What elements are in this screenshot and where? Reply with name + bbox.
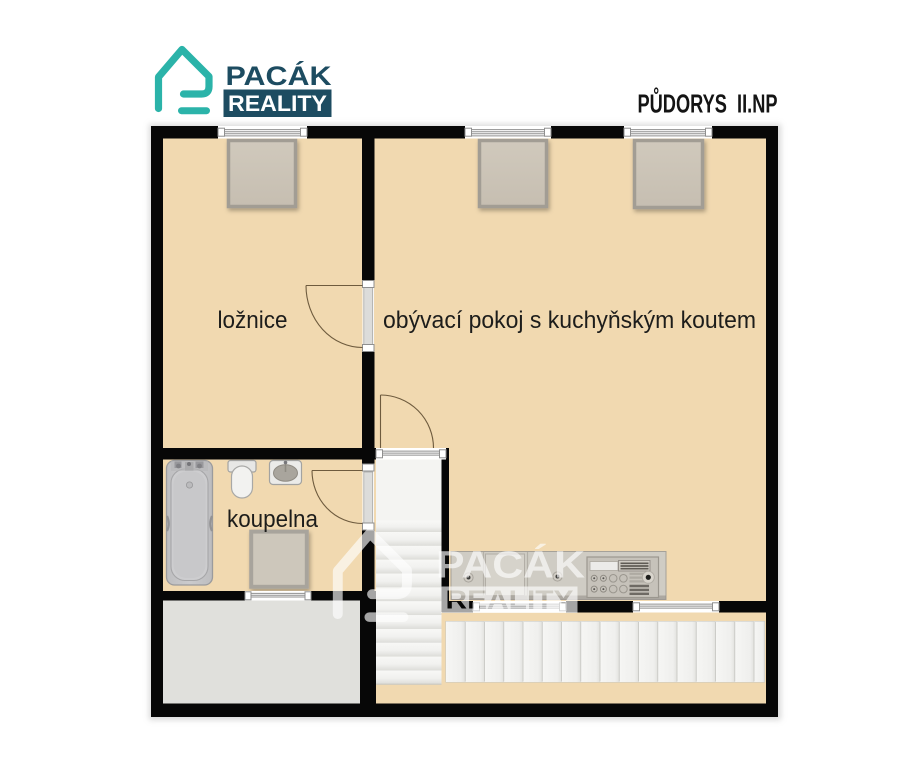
svg-text:PŮDORYS II.NP: PŮDORYS II.NP: [638, 87, 778, 119]
svg-text:obývací pokoj s kuchyňským kou: obývací pokoj s kuchyňským koutem: [383, 307, 756, 334]
svg-text:PACÁK: PACÁK: [436, 543, 586, 587]
svg-text:REALITY: REALITY: [228, 91, 327, 116]
svg-text:ložnice: ložnice: [218, 307, 288, 334]
svg-text:koupelna: koupelna: [227, 506, 319, 533]
svg-text:PACÁK: PACÁK: [226, 61, 332, 91]
